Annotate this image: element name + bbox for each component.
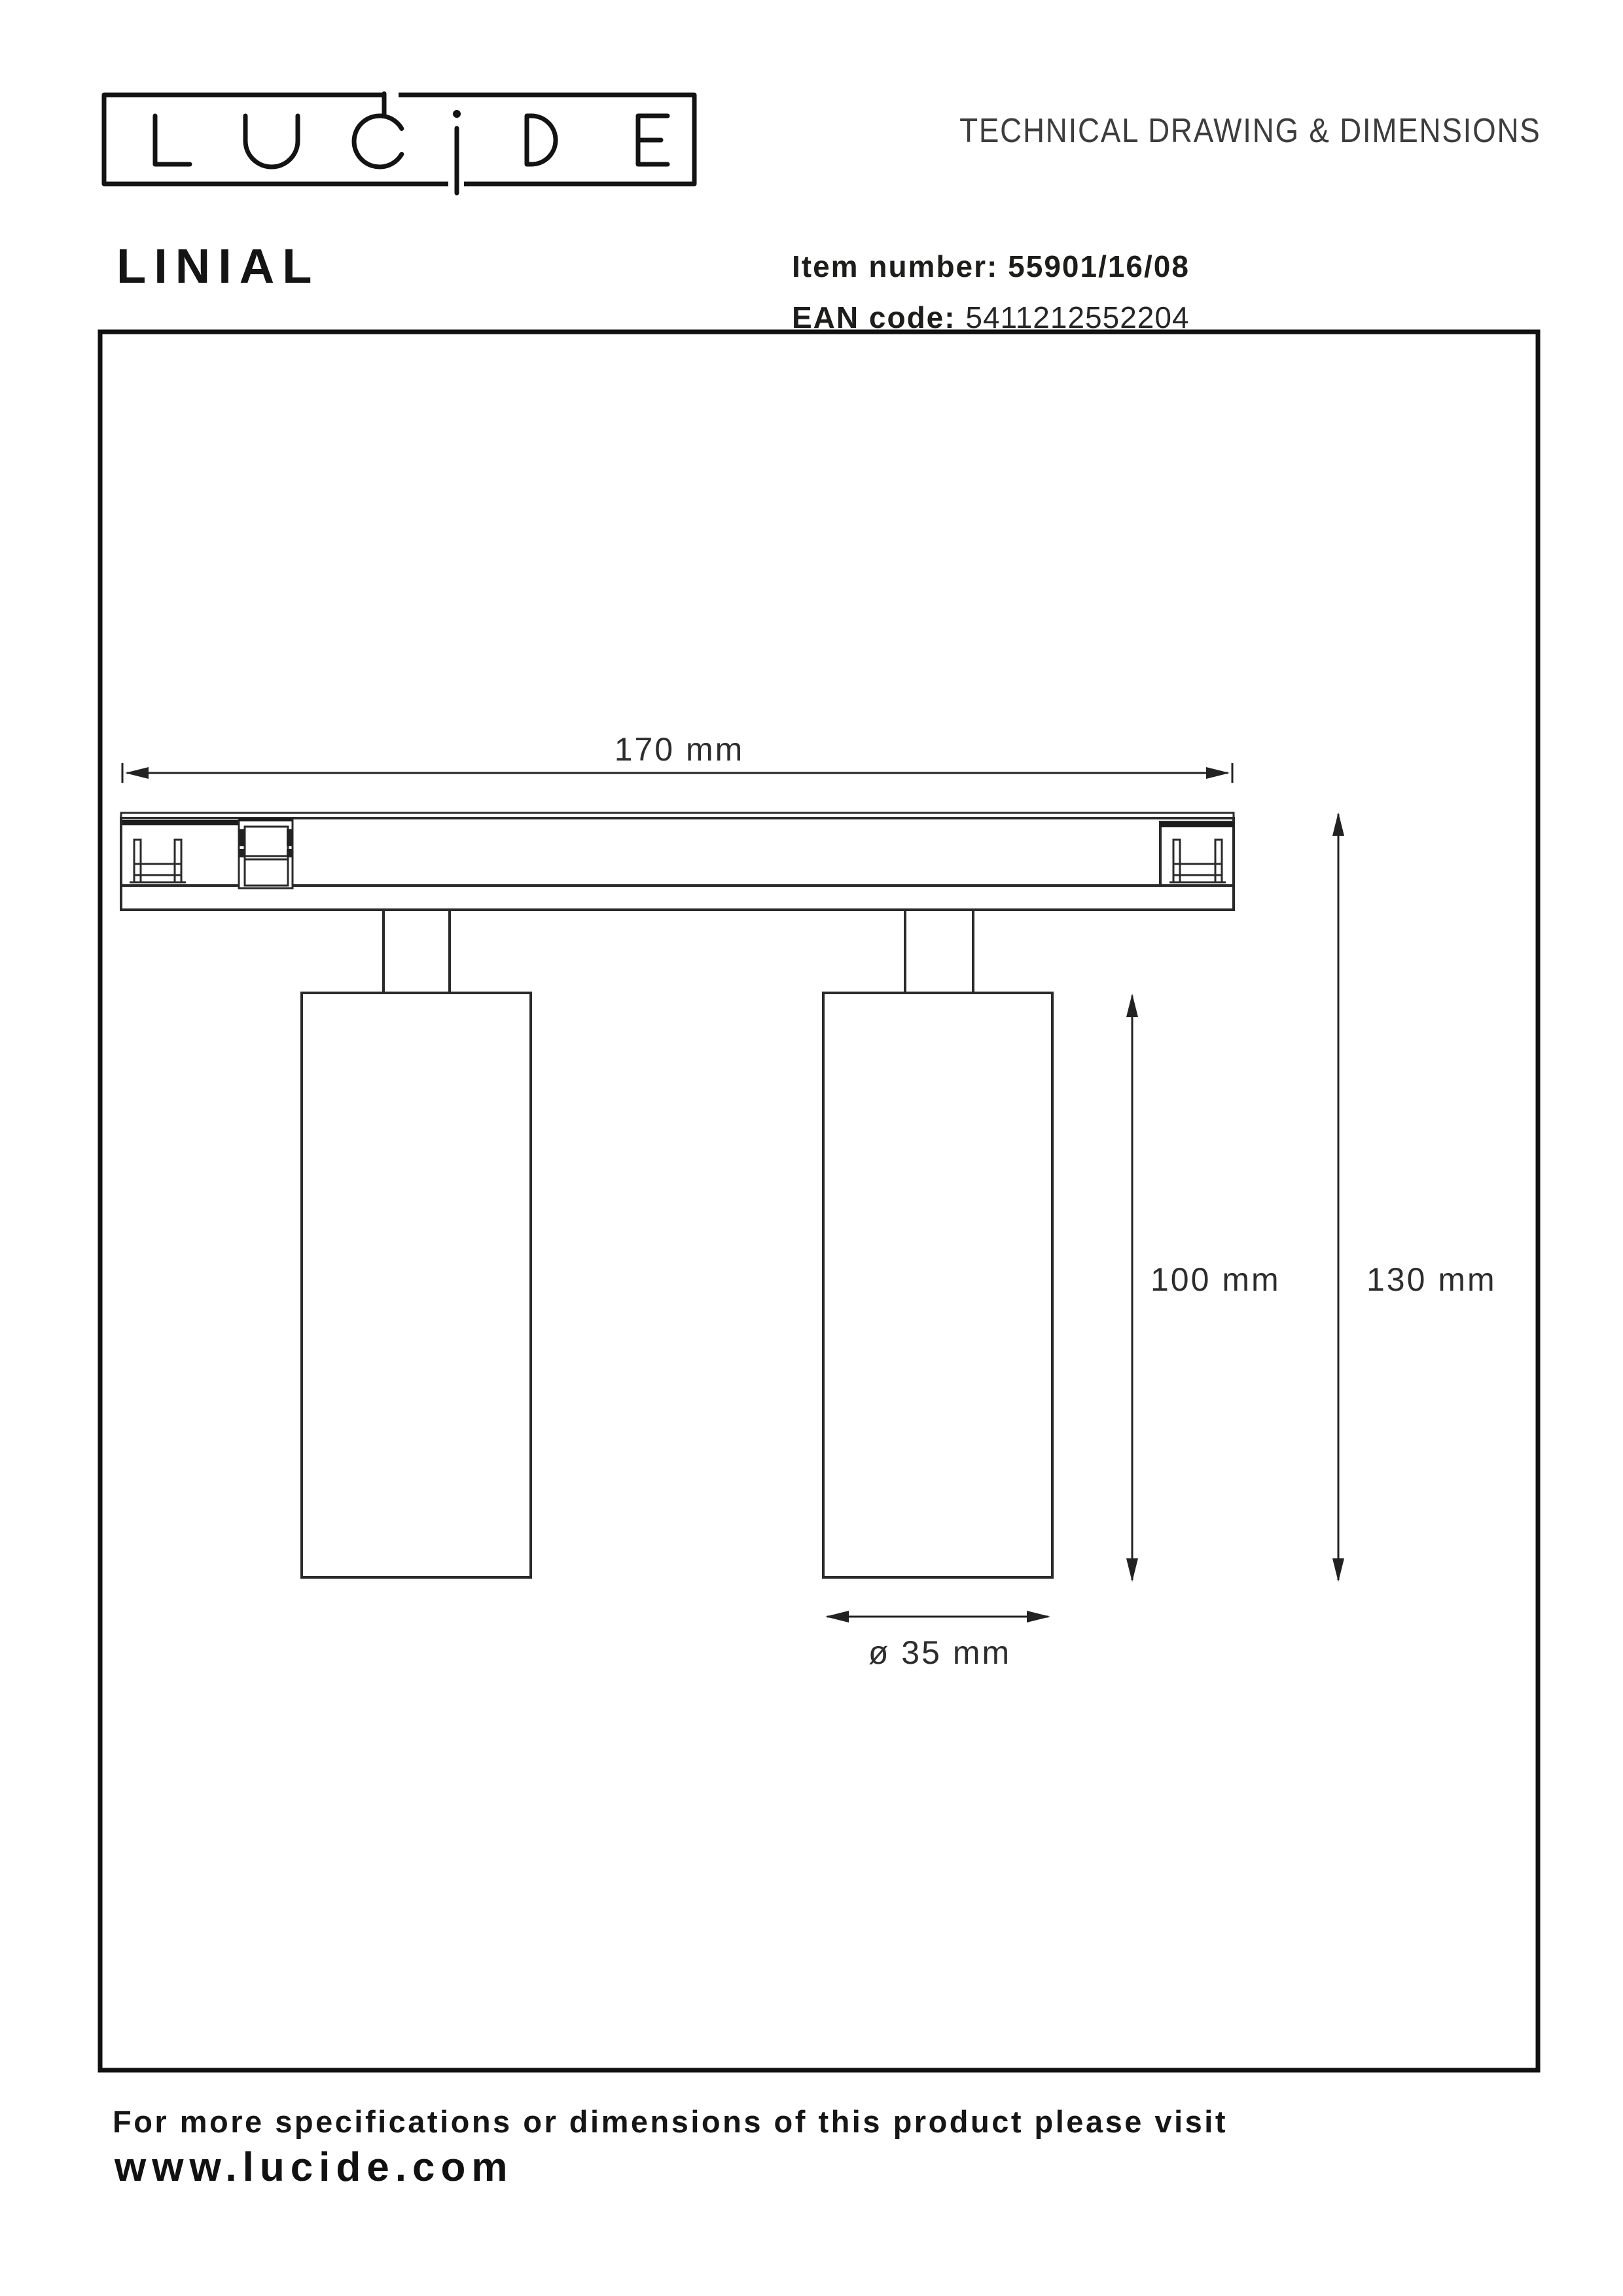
ean-code-value: 5411212552204: [965, 300, 1189, 334]
logo-letter-u: [245, 116, 298, 167]
item-number-label: Item number:: [792, 249, 998, 283]
dim-label-spot-diameter: ø 35 mm: [868, 1634, 1011, 1672]
logo-letter-i-dot: [453, 110, 461, 118]
track-right-clip: [1160, 822, 1234, 886]
lucide-logo: [104, 94, 694, 193]
ean-code-row: EAN code: 5411212552204: [792, 292, 1190, 343]
track-bottom-plate: [121, 886, 1234, 910]
ean-code-label: EAN code:: [792, 300, 956, 334]
spec-sheet-page: LUCIDE TECHNICAL DRAWING & DIMENSIONS LI…: [0, 0, 1623, 2296]
dim-label-total-height: 130 mm: [1366, 1261, 1497, 1299]
dim-label-spot-height: 100 mm: [1150, 1261, 1281, 1299]
dimension-lines: [122, 763, 1338, 1617]
product-name: LINIAL: [116, 238, 319, 294]
item-number-value: 55901/16/08: [1008, 249, 1190, 283]
footer-website-link[interactable]: www.lucide.com: [115, 2144, 513, 2191]
track-rail: [121, 813, 1234, 910]
item-number-row: Item number: 55901/16/08: [792, 241, 1190, 292]
track-left-clip: [130, 840, 186, 882]
document-title: TECHNICAL DRAWING & DIMENSIONS: [960, 111, 1541, 151]
logo-letter-l: [155, 116, 190, 164]
drawing-canvas: [0, 0, 1623, 2296]
dim-label-track-width: 170 mm: [615, 730, 745, 768]
track-contact-bar: [122, 820, 239, 825]
spot-right-cylinder: [823, 993, 1052, 1577]
spot-right-stem: [905, 910, 973, 993]
logo-letter-c: [354, 116, 402, 167]
product-identifiers: Item number: 55901/16/08 EAN code: 54112…: [792, 241, 1190, 343]
spotlights: [302, 910, 1052, 1577]
logo-letter-e: [638, 116, 668, 164]
footer-note: For more specifications or dimensions of…: [113, 2104, 1228, 2140]
spot-left-stem: [383, 910, 450, 993]
spot-left-cylinder: [302, 993, 531, 1577]
logo-letter-d: [527, 116, 556, 164]
drawing-frame: [100, 332, 1538, 2070]
track-connector: [239, 818, 293, 888]
